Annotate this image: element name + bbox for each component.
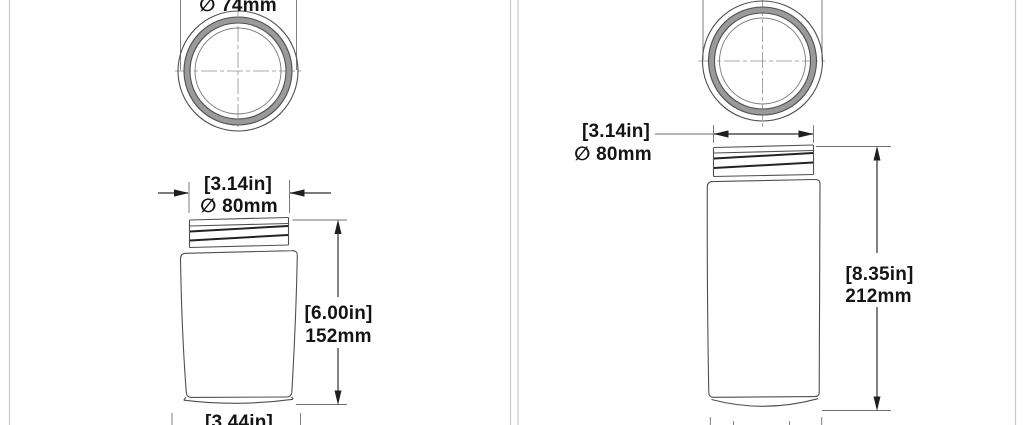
- panel-borders: [10, 0, 1016, 425]
- shoulder-line: [707, 179, 820, 187]
- base-curve: [184, 399, 293, 403]
- arrowhead-up-icon: [874, 146, 881, 161]
- body-bottom-line: [709, 393, 819, 398]
- height-dimension-inches: [6.00in]: [304, 303, 372, 324]
- technical-drawing-sheet: ∅ 74mm [3.14in] ∅ 80mm: [0, 0, 1026, 425]
- body-bottom-line: [186, 393, 291, 398]
- right-top-view: [698, 0, 827, 127]
- neck-dimension-metric: ∅ 80mm: [574, 144, 652, 165]
- arrowhead-right-icon: [799, 130, 814, 137]
- neck-bottom-line: [190, 245, 289, 248]
- thread-line: [714, 153, 813, 159]
- neck-dimension-inches: [3.14in]: [582, 121, 650, 142]
- arrowhead-down-icon: [335, 391, 342, 406]
- neck-dimension-inches: [3.14in]: [204, 174, 272, 195]
- base-dimension-inches: [3.44in]: [205, 412, 273, 425]
- left-height-dimension: [6.00in] 152mm: [293, 220, 373, 406]
- body-side-right: [292, 256, 298, 393]
- right-front-view: [707, 145, 821, 425]
- top-view-diameter-label: ∅ 74mm: [199, 0, 277, 16]
- left-top-view: ∅ 74mm: [175, 0, 301, 131]
- neck-bottom-line: [714, 175, 814, 177]
- shoulder-line: [181, 251, 298, 259]
- neck-rim-line: [190, 224, 289, 227]
- neck-rim-line: [714, 151, 813, 154]
- base-curve: [712, 399, 819, 407]
- right-bottle-drawing: [3.14in] ∅ 80mm: [574, 0, 913, 425]
- height-dimension-metric: 152mm: [305, 326, 372, 347]
- neck-dimension-metric: ∅ 80mm: [200, 196, 278, 217]
- arrowhead-left-icon: [714, 130, 729, 137]
- body-side-left: [181, 259, 187, 393]
- body-side-right: [819, 184, 820, 393]
- arrowhead-left-icon: [290, 189, 305, 196]
- arrowhead-down-icon: [874, 397, 881, 412]
- height-dimension-metric: 212mm: [845, 286, 912, 307]
- height-dimension-inches: [8.35in]: [845, 264, 913, 285]
- thread-line: [190, 226, 288, 232]
- thread-line: [714, 163, 813, 169]
- arrowhead-right-icon: [174, 189, 189, 196]
- right-neck-dimension: [3.14in] ∅ 80mm: [574, 121, 813, 165]
- left-base-dimension: [3.44in]: [172, 412, 301, 425]
- left-front-view: [181, 218, 298, 404]
- arrowhead-up-icon: [335, 220, 342, 235]
- left-jar-drawing: ∅ 74mm [3.14in] ∅ 80mm: [158, 0, 373, 425]
- left-neck-dimension: [3.14in] ∅ 80mm: [158, 174, 331, 217]
- thread-line: [190, 235, 288, 241]
- drawing-canvas: ∅ 74mm [3.14in] ∅ 80mm: [0, 0, 1026, 425]
- right-height-dimension: [8.35in] 212mm: [816, 146, 914, 411]
- neck-rim-line: [190, 218, 289, 221]
- body-side-left: [707, 187, 709, 393]
- base-edge-tick: [184, 397, 186, 400]
- neck-rim-line: [714, 145, 813, 148]
